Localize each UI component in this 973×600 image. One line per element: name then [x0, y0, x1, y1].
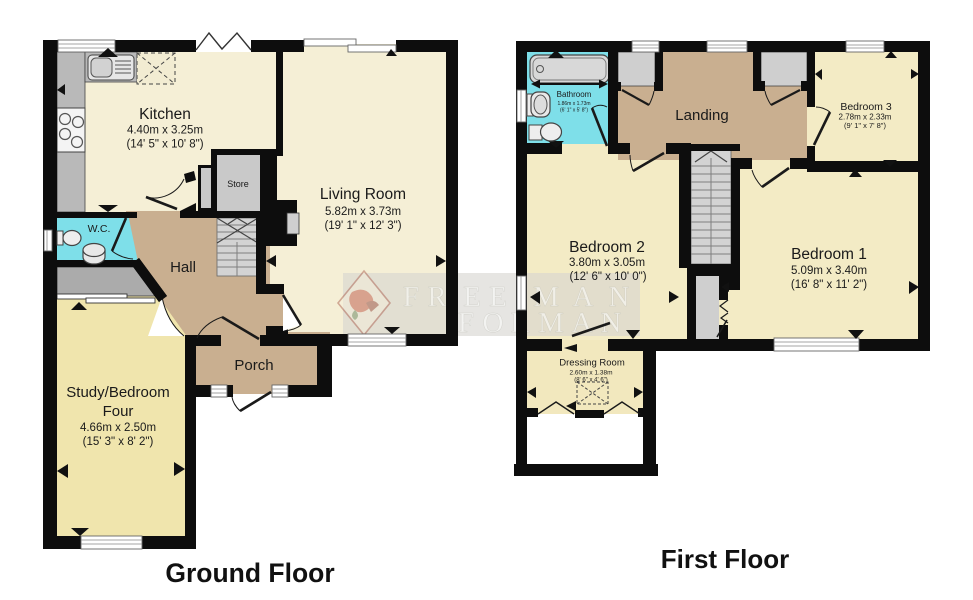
svg-text:Kitchen: Kitchen: [139, 106, 191, 123]
svg-text:3.80m x 3.05m: 3.80m x 3.05m: [569, 257, 645, 269]
svg-text:O: O: [483, 307, 504, 339]
svg-text:(16' 8" x 11' 2"): (16' 8" x 11' 2"): [791, 279, 867, 291]
svg-text:2.60m x 1.38m: 2.60m x 1.38m: [570, 370, 613, 377]
svg-text:4.66m x 2.50m: 4.66m x 2.50m: [80, 422, 156, 434]
svg-text:(12' 6" x 10' 0"): (12' 6" x 10' 0"): [569, 271, 646, 283]
svg-text:Bedroom 3: Bedroom 3: [840, 101, 892, 113]
svg-text:(6' 1" x 5' 8"): (6' 1" x 5' 8"): [560, 108, 588, 114]
svg-text:F: F: [403, 281, 419, 313]
svg-text:First Floor: First Floor: [661, 544, 790, 574]
svg-text:(15' 3" x 8' 2"): (15' 3" x 8' 2"): [83, 436, 154, 448]
svg-text:Ground Floor: Ground Floor: [165, 558, 334, 588]
svg-text:N: N: [601, 307, 622, 339]
svg-text:M: M: [538, 307, 564, 339]
svg-text:Living Room: Living Room: [320, 186, 406, 203]
svg-text:R: R: [427, 281, 447, 313]
svg-text:Porch: Porch: [234, 357, 273, 374]
svg-text:(19' 1" x 12' 3"): (19' 1" x 12' 3"): [324, 220, 401, 232]
svg-text:Store: Store: [227, 179, 249, 189]
svg-text:Landing: Landing: [675, 107, 728, 124]
svg-text:Bedroom 2: Bedroom 2: [569, 239, 645, 256]
svg-text:5.82m x 3.73m: 5.82m x 3.73m: [325, 206, 401, 218]
svg-text:(14' 5" x 10' 8"): (14' 5" x 10' 8"): [126, 139, 203, 151]
svg-text:F: F: [458, 307, 474, 339]
svg-text:Hall: Hall: [170, 259, 196, 276]
svg-text:4.40m x 3.25m: 4.40m x 3.25m: [127, 125, 203, 137]
svg-text:(9' 1" x 7' 8"): (9' 1" x 7' 8"): [844, 121, 886, 130]
svg-text:W.C.: W.C.: [88, 223, 111, 235]
svg-text:Dressing Room: Dressing Room: [559, 358, 625, 369]
svg-text:(8' 6" x 4' 6"): (8' 6" x 4' 6"): [574, 378, 608, 384]
svg-text:Four: Four: [103, 403, 134, 420]
svg-text:Bedroom 1: Bedroom 1: [791, 246, 867, 263]
svg-text:Bathroom: Bathroom: [557, 90, 592, 99]
svg-text:5.09m x 3.40m: 5.09m x 3.40m: [791, 265, 867, 277]
svg-text:1.86m x 1.73m: 1.86m x 1.73m: [557, 101, 590, 107]
svg-text:Study/Bedroom: Study/Bedroom: [66, 384, 169, 401]
